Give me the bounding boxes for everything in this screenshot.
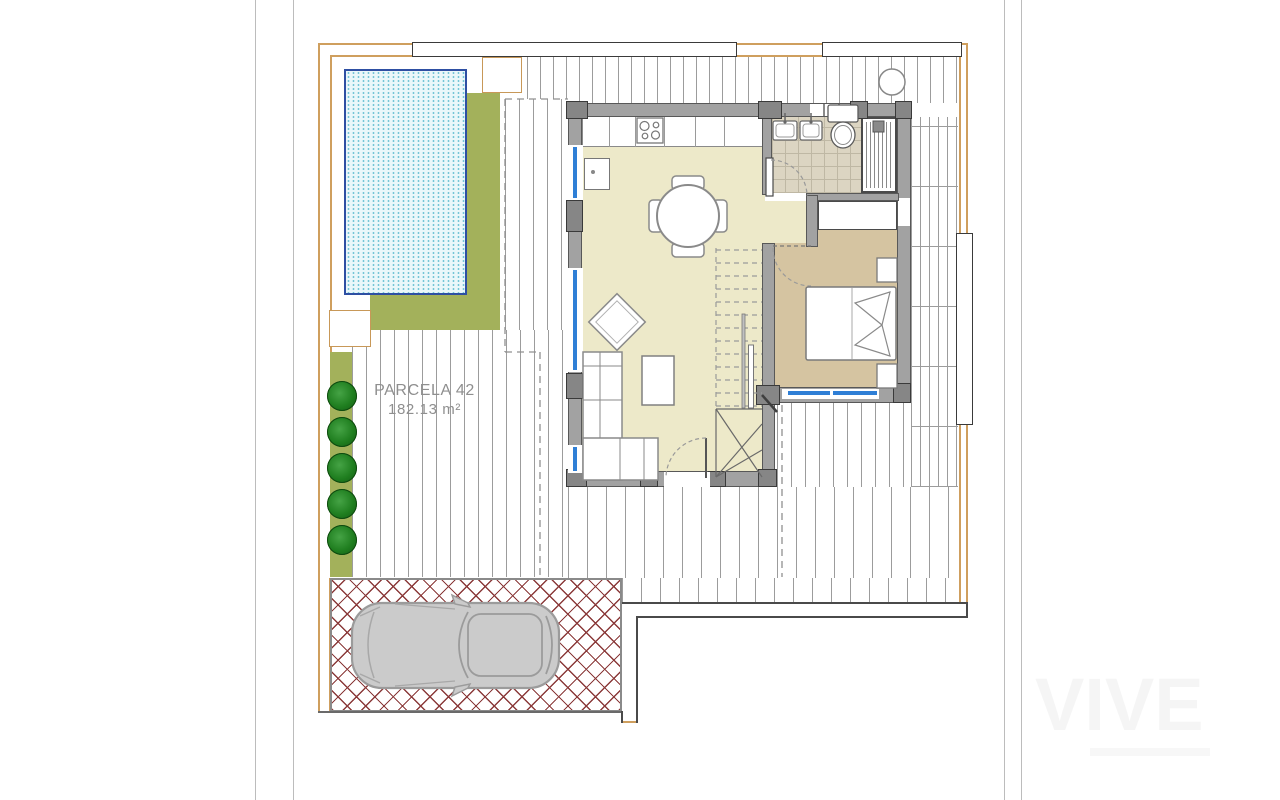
deck-round-feature xyxy=(879,69,905,95)
plan-vector-overlay xyxy=(0,0,1280,800)
nightstand xyxy=(877,364,897,388)
floor-plan-canvas: VIVE xyxy=(0,0,1280,800)
toilet-icon xyxy=(828,105,858,148)
wall-diagonal-piece xyxy=(762,395,777,412)
stair-rail xyxy=(742,314,745,408)
nightstand xyxy=(877,258,897,282)
staircase xyxy=(716,248,762,408)
shower-drain xyxy=(873,121,884,132)
parcel-label: PARCELA 42 xyxy=(352,382,497,400)
setback-dashed-lines xyxy=(505,99,782,577)
armchair xyxy=(589,294,646,351)
entrance-door xyxy=(666,438,706,478)
coffee-table xyxy=(642,356,674,405)
bathroom-door xyxy=(766,158,807,196)
winder-stairs xyxy=(716,409,762,477)
car-icon xyxy=(352,595,559,696)
sink-faucet-dot xyxy=(591,170,595,174)
double-bed xyxy=(806,287,896,360)
bedroom-door xyxy=(773,246,811,286)
parcel-area-label: 182.13 m² xyxy=(352,401,497,418)
double-sink-vanity xyxy=(773,113,822,140)
stair-rail-post xyxy=(749,345,754,408)
dining-set xyxy=(649,176,727,257)
stove-icon xyxy=(637,118,663,143)
